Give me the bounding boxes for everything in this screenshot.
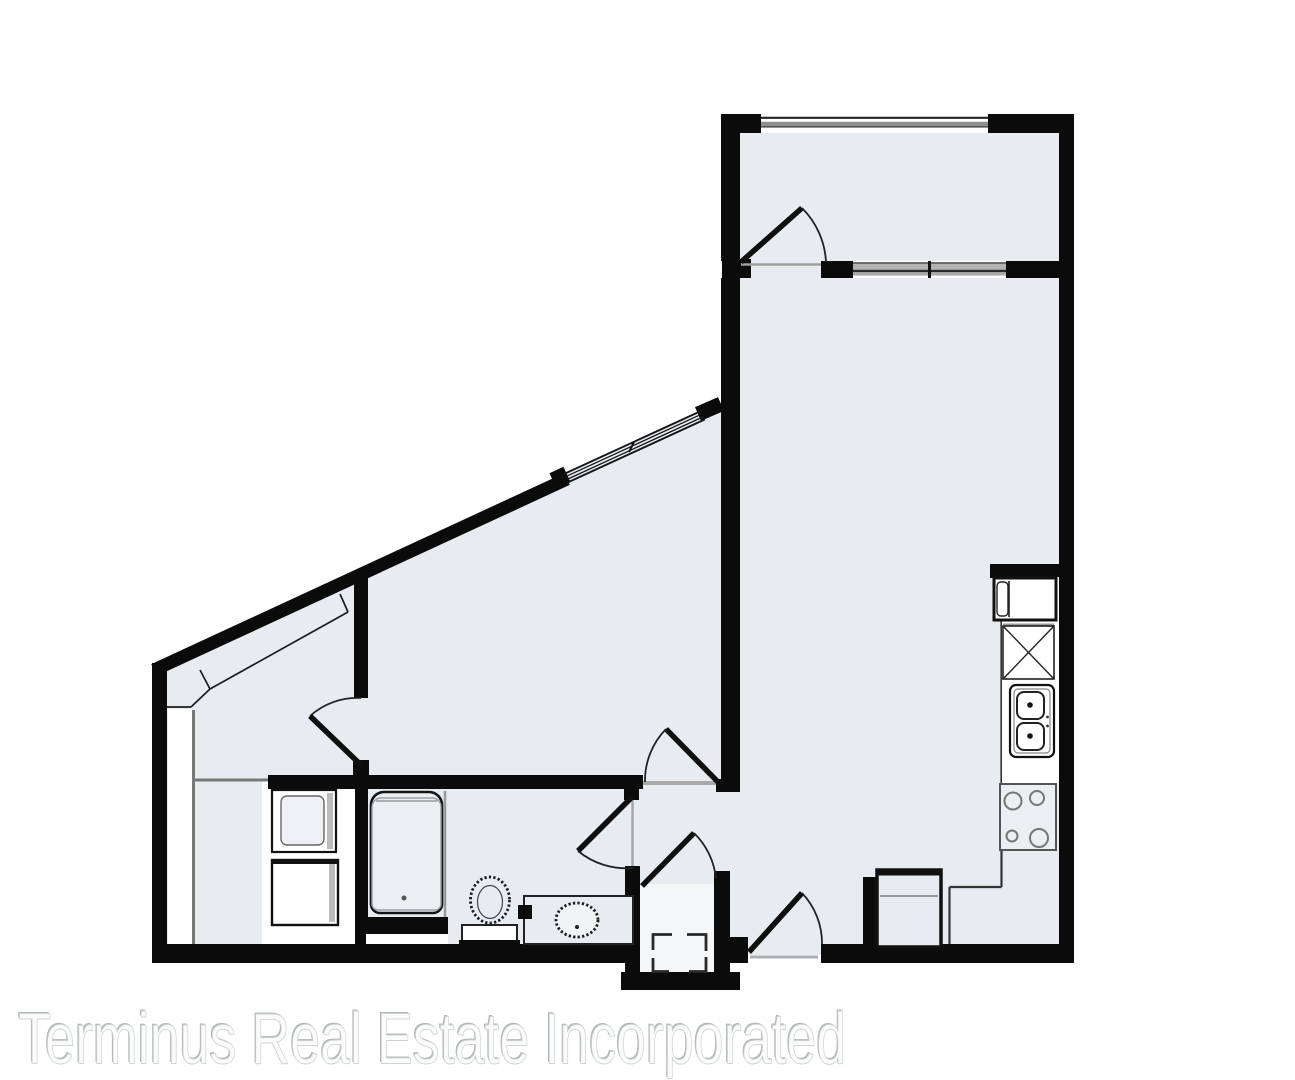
svg-text:Terminus Real Estate Incorpora: Terminus Real Estate Incorporated	[18, 1000, 846, 1080]
